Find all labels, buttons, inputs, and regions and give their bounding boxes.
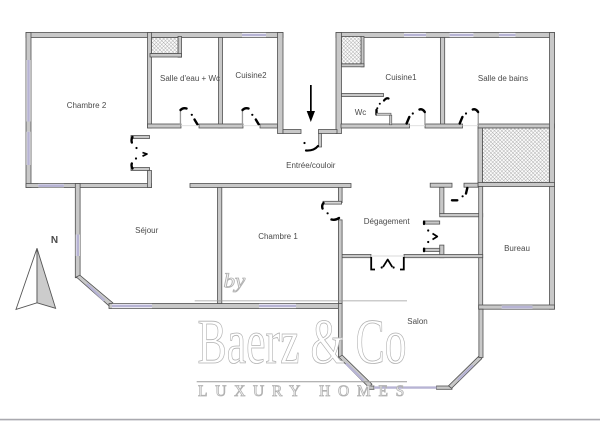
svg-text:Cuisine1: Cuisine1: [385, 73, 417, 82]
svg-text:Entrée/couloir: Entrée/couloir: [286, 161, 336, 170]
svg-text:Salon: Salon: [407, 317, 427, 326]
svg-text:LUXURY HOMES: LUXURY HOMES: [198, 383, 412, 400]
svg-text:N: N: [51, 235, 58, 246]
svg-text:by: by: [224, 270, 246, 292]
svg-text:Bureau: Bureau: [504, 244, 530, 253]
svg-text:Chambre 1: Chambre 1: [258, 232, 298, 241]
svg-text:Baerz & Co: Baerz & Co: [198, 306, 407, 377]
svg-text:Salle de bains: Salle de bains: [478, 74, 528, 83]
svg-text:Salle d'eau + Wc: Salle d'eau + Wc: [160, 74, 220, 83]
svg-text:Cuisine2: Cuisine2: [235, 71, 267, 80]
svg-text:Séjour: Séjour: [135, 226, 158, 235]
svg-text:Wc: Wc: [355, 108, 367, 117]
svg-text:Dégagement: Dégagement: [364, 217, 411, 226]
svg-text:Chambre 2: Chambre 2: [67, 101, 107, 110]
